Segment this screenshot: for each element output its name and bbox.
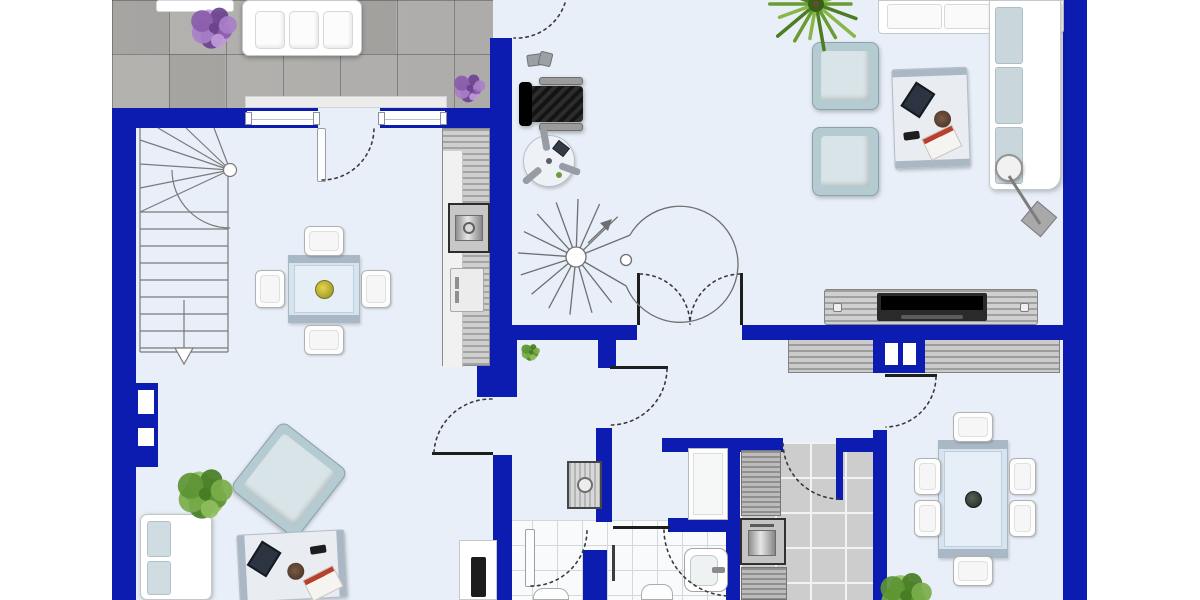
oven-handle	[750, 524, 774, 527]
table-edge	[892, 68, 966, 78]
table-edge	[289, 256, 359, 263]
dining-table-4	[288, 255, 360, 323]
sofa-cushion	[289, 11, 319, 49]
chair-seat	[958, 417, 988, 437]
remote	[310, 544, 327, 554]
wall-outer-right	[1063, 0, 1087, 600]
dining4-chair-right	[361, 270, 391, 308]
dining-chair-right-1	[1009, 458, 1036, 495]
door-jamb-double-right	[740, 273, 743, 325]
cup	[287, 562, 305, 580]
chair-seat	[309, 330, 339, 350]
chair-backrest	[519, 82, 532, 126]
terrace-sofa	[242, 0, 362, 56]
cabinet-handle	[455, 277, 459, 289]
bottle	[556, 172, 562, 178]
tv-stand-living2	[459, 540, 497, 600]
magazine	[921, 124, 962, 160]
window-mullion	[380, 119, 445, 120]
armchair-living-1	[812, 42, 879, 110]
wall-center-vertical	[490, 38, 512, 340]
chair-seat	[1014, 463, 1031, 490]
terrace-planter	[156, 0, 234, 12]
shower-glass	[612, 545, 615, 581]
sofa-cushion	[147, 521, 171, 557]
fruit-bowl	[315, 280, 334, 299]
wall-hall-top	[490, 325, 637, 340]
tv-lowboard	[824, 289, 1038, 325]
chair-seat	[309, 231, 339, 251]
window-sill-outside	[245, 96, 447, 108]
door-leaf-kitchen	[836, 438, 843, 500]
chair-seat	[366, 275, 386, 303]
knob	[1020, 303, 1029, 312]
coffee-table-living2	[236, 529, 347, 600]
dining-chair-left-2	[914, 500, 941, 537]
tv-stand	[901, 315, 963, 319]
kitchen-counter-north	[741, 450, 781, 516]
terrace-tile-dark	[169, 54, 225, 108]
wall-wc	[583, 550, 607, 600]
kitchen-counter-south	[741, 567, 787, 600]
toilet-bath	[641, 584, 673, 600]
tv-screen	[471, 557, 486, 597]
remote	[903, 131, 920, 141]
clutter-item	[537, 51, 553, 68]
dining-chair-right-2	[1009, 500, 1036, 537]
oven-door	[748, 530, 776, 556]
sofa-cushion	[147, 561, 171, 595]
sofa-cushion	[323, 11, 353, 49]
chair-seat	[958, 561, 988, 581]
wall-dining-left	[873, 430, 887, 600]
wall-outer-left	[112, 108, 136, 600]
wall-kitchen-top-2	[843, 438, 875, 452]
cabinet-handle	[455, 291, 459, 303]
fan-table	[523, 135, 575, 187]
sofa-cushion	[887, 4, 942, 29]
window-handle	[440, 112, 447, 125]
bowl	[965, 491, 982, 508]
desk-chair	[519, 77, 586, 131]
chair-armrest	[539, 77, 583, 85]
dining-chair-left-1	[914, 458, 941, 495]
chair-seat	[1014, 505, 1031, 532]
washbasin	[684, 548, 728, 592]
door-open-hall-west	[432, 452, 493, 455]
sofa-cushion	[995, 7, 1023, 64]
desk-clutter	[527, 52, 553, 68]
oven	[448, 203, 490, 253]
window-handle	[245, 112, 252, 125]
door-open-bath-north	[610, 366, 668, 369]
window-handle	[313, 112, 320, 125]
door-threshold-bath	[613, 526, 670, 529]
tv-panel	[881, 296, 983, 310]
window-dining-left	[247, 108, 318, 128]
cabinet-column	[443, 151, 463, 367]
floor-plan	[0, 0, 1200, 600]
dining4-chair-top	[304, 226, 344, 256]
chair-seat	[525, 86, 583, 122]
wall-kitchen-left	[726, 438, 740, 600]
window-handle	[378, 112, 385, 125]
coffee-table-living	[891, 67, 970, 170]
door-open-dining	[885, 374, 937, 377]
knob	[833, 303, 842, 312]
wall-niche	[138, 390, 154, 414]
laptop	[552, 140, 570, 157]
chair-seat	[919, 505, 936, 532]
chair-seat	[260, 275, 280, 303]
chimney	[873, 337, 925, 373]
dining4-chair-left	[255, 270, 285, 308]
window-dining-right	[380, 108, 445, 128]
toilet-wc	[533, 588, 569, 600]
seat-cushion	[821, 136, 870, 187]
tv-screen	[877, 293, 987, 321]
tablet	[247, 541, 282, 578]
sofa-cushion	[255, 11, 285, 49]
armchair-living-2	[812, 127, 879, 196]
faucet-icon	[712, 567, 725, 573]
table-edge	[289, 315, 359, 322]
door-leaf-entry	[317, 128, 326, 182]
kitchen-oven	[740, 518, 786, 565]
chair-seat	[919, 463, 936, 490]
dining-table-6	[938, 440, 1008, 558]
sofa-living2	[140, 514, 212, 600]
boiler-dial	[577, 477, 593, 493]
wall-hall-stub	[598, 340, 616, 368]
boiler	[567, 461, 602, 509]
door-jamb-double-left	[637, 273, 640, 325]
window-mullion	[247, 119, 318, 120]
table-edge	[237, 535, 247, 600]
seat-cushion	[821, 51, 870, 101]
wall-niche	[138, 428, 154, 446]
sofa-cushion	[995, 67, 1023, 124]
shower-tray	[693, 453, 723, 515]
shower	[688, 448, 728, 520]
dining-chair-top	[953, 412, 993, 442]
tablet	[900, 82, 935, 119]
dining-chair-bottom	[953, 556, 993, 586]
table-edge	[939, 441, 1007, 449]
chimney-flue	[903, 343, 916, 365]
table-center-dot	[546, 158, 552, 164]
sink-cabinet	[450, 268, 484, 312]
oven-ring	[463, 222, 475, 234]
dining4-chair-bottom	[304, 325, 344, 355]
arc-lamp-shade	[995, 154, 1023, 182]
door-leaf-wc	[525, 529, 535, 587]
wall-top-left	[112, 108, 247, 128]
wall-niche-block	[136, 383, 158, 467]
chimney-flue	[885, 343, 898, 365]
